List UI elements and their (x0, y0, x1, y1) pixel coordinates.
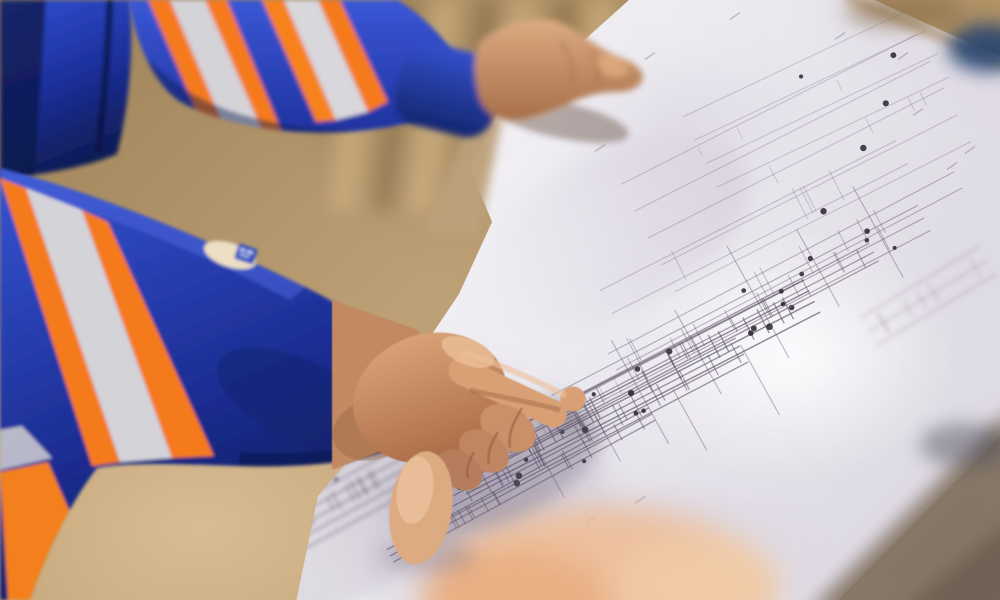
background-blue-object (948, 24, 1000, 72)
corner-dark-smudge (920, 423, 1000, 467)
figures-layer (0, 0, 1000, 600)
bottom-right-background (808, 408, 1000, 600)
photo-canvas (0, 0, 1000, 600)
background-brown-streak (845, 0, 965, 28)
index-fingertip (561, 387, 586, 412)
jacket-chest (0, 0, 131, 180)
